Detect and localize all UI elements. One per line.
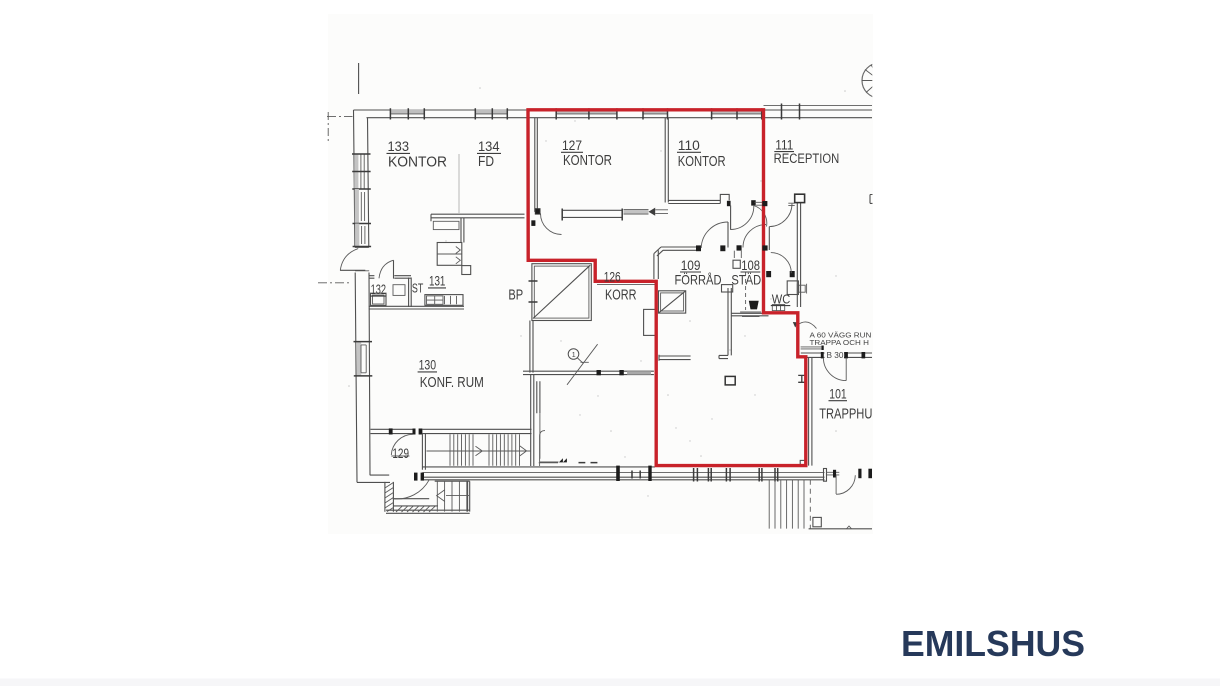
svg-text:EMILSHUS: EMILSHUS <box>901 623 1085 664</box>
svg-text:WC: WC <box>772 292 791 307</box>
svg-text:TRAPPA OCH H: TRAPPA OCH H <box>810 338 869 347</box>
svg-text:KORR: KORR <box>605 287 637 304</box>
svg-text:110: 110 <box>678 137 700 153</box>
svg-text:BP: BP <box>508 287 523 304</box>
svg-text:KONTOR: KONTOR <box>388 154 447 171</box>
svg-text:111: 111 <box>775 136 793 152</box>
svg-text:FD: FD <box>478 153 494 170</box>
svg-text:KONF. RUM: KONF. RUM <box>420 374 484 391</box>
svg-text:133: 133 <box>388 138 410 154</box>
svg-text:RECEPTION: RECEPTION <box>774 151 840 166</box>
svg-text:132: 132 <box>371 281 387 297</box>
svg-text:129: 129 <box>392 445 409 461</box>
svg-text:KONTOR: KONTOR <box>563 152 612 169</box>
svg-text:1: 1 <box>572 352 576 359</box>
svg-text:101: 101 <box>829 386 846 402</box>
svg-text:FÖRRÅD: FÖRRÅD <box>675 271 722 288</box>
svg-text:134: 134 <box>478 138 500 154</box>
svg-text:109: 109 <box>681 257 701 273</box>
svg-text:B 30: B 30 <box>827 350 844 360</box>
svg-text:130: 130 <box>419 357 437 373</box>
svg-text:126: 126 <box>604 268 621 284</box>
svg-text:ST: ST <box>412 281 423 296</box>
svg-text:131: 131 <box>429 273 446 289</box>
svg-text:127: 127 <box>562 137 582 153</box>
svg-text:TRAPPHU: TRAPPHU <box>819 406 872 422</box>
svg-text:108: 108 <box>741 257 760 273</box>
svg-text:KONTOR: KONTOR <box>678 153 726 170</box>
svg-text:STÄD: STÄD <box>731 272 761 288</box>
